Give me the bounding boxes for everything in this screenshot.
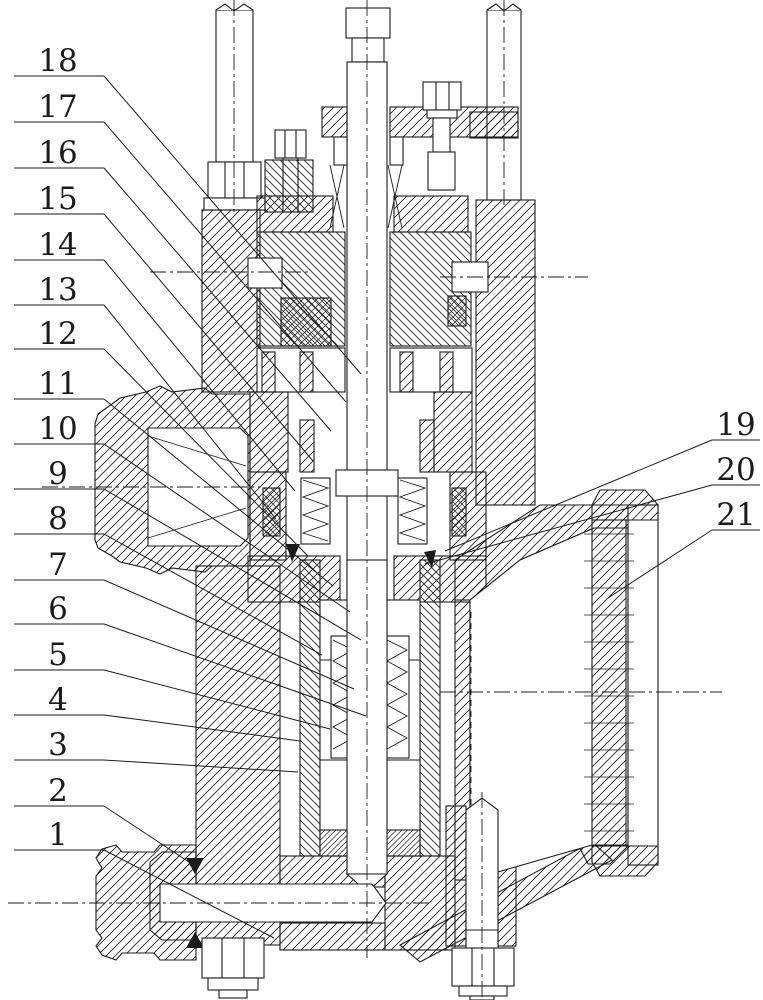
drain-nut bbox=[202, 938, 264, 978]
callout-number-15: 15 bbox=[38, 181, 77, 217]
callout-number-4: 4 bbox=[48, 682, 68, 718]
callout-number-21: 21 bbox=[716, 497, 755, 533]
technical-drawing-page: 181716151413121110987654321192021 bbox=[0, 0, 763, 1000]
callout-number-2: 2 bbox=[48, 773, 68, 809]
packing-spring-left bbox=[301, 478, 330, 544]
bolt-nut bbox=[452, 948, 514, 986]
packing-spring-right bbox=[398, 478, 427, 544]
callout-number-18: 18 bbox=[38, 43, 77, 79]
plug-spring-right bbox=[385, 636, 409, 758]
callout-number-19: 19 bbox=[716, 407, 755, 443]
valve-sectional-drawing: 181716151413121110987654321192021 bbox=[0, 0, 763, 1000]
callout-number-12: 12 bbox=[38, 316, 77, 352]
flange-face bbox=[628, 505, 658, 865]
callout-number-10: 10 bbox=[38, 411, 77, 447]
left-upper-stud bbox=[202, 4, 265, 392]
callout-number-3: 3 bbox=[48, 727, 68, 763]
inlet-hub bbox=[95, 386, 250, 574]
callout-number-9: 9 bbox=[48, 456, 68, 492]
flange-wall bbox=[592, 520, 626, 846]
callout-number-5: 5 bbox=[48, 637, 68, 673]
callout-number-6: 6 bbox=[48, 591, 68, 627]
callout-number-14: 14 bbox=[38, 227, 77, 263]
callout-number-16: 16 bbox=[38, 135, 77, 171]
callout-number-20: 20 bbox=[716, 452, 755, 488]
callout-number-17: 17 bbox=[38, 89, 77, 125]
callout-number-7: 7 bbox=[48, 547, 68, 583]
right-upper-stud bbox=[476, 4, 535, 505]
callout-number-11: 11 bbox=[38, 366, 77, 402]
callout-number-1: 1 bbox=[48, 817, 68, 853]
callout-number-8: 8 bbox=[48, 501, 68, 537]
callout-number-13: 13 bbox=[38, 272, 77, 308]
valve-cage bbox=[300, 560, 440, 892]
